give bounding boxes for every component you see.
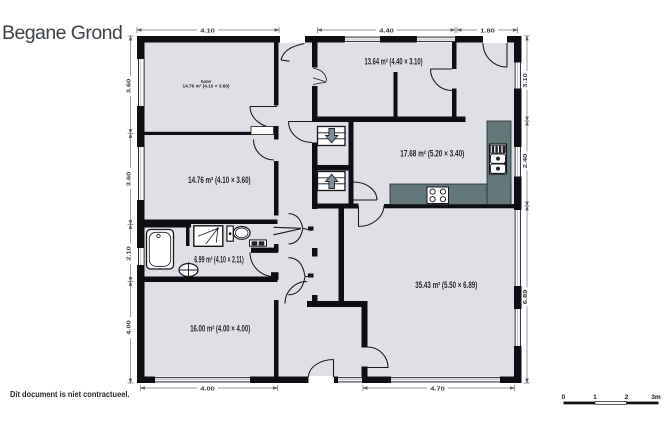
svg-text:Begane Grond: Begane Grond bbox=[2, 22, 122, 44]
svg-text:3.60: 3.60 bbox=[127, 79, 133, 94]
svg-text:6.99 m² (4.10 × 2.11): 6.99 m² (4.10 × 2.11) bbox=[194, 255, 244, 265]
svg-text:35.43 m² (5.50 × 6.89): 35.43 m² (5.50 × 6.89) bbox=[415, 280, 477, 290]
svg-text:4.70: 4.70 bbox=[430, 386, 445, 392]
svg-text:4.00: 4.00 bbox=[127, 320, 133, 335]
svg-text:1.80: 1.80 bbox=[480, 28, 495, 34]
svg-text:4.00: 4.00 bbox=[200, 386, 215, 392]
svg-text:3m: 3m bbox=[651, 394, 661, 401]
svg-text:Dit document is niet contractu: Dit document is niet contractueel. bbox=[10, 390, 130, 399]
svg-text:3.60: 3.60 bbox=[127, 172, 133, 187]
svg-text:14.76 m² (4.10 × 3.60): 14.76 m² (4.10 × 3.60) bbox=[188, 175, 251, 185]
svg-text:2.40: 2.40 bbox=[523, 154, 529, 169]
svg-text:2.10: 2.10 bbox=[127, 246, 133, 261]
svg-text:14.76 m² (4.10 × 3.60): 14.76 m² (4.10 × 3.60) bbox=[183, 84, 231, 89]
svg-text:17.68 m² (5.20 × 3.40): 17.68 m² (5.20 × 3.40) bbox=[400, 148, 464, 158]
svg-text:2: 2 bbox=[625, 394, 629, 401]
svg-text:4.40: 4.40 bbox=[379, 28, 394, 34]
svg-text:0: 0 bbox=[562, 394, 566, 401]
svg-text:6.89: 6.89 bbox=[523, 289, 529, 304]
svg-text:3.10: 3.10 bbox=[523, 73, 529, 88]
svg-text:1: 1 bbox=[593, 394, 597, 401]
svg-text:16.00 m² (4.00 × 4.00): 16.00 m² (4.00 × 4.00) bbox=[190, 323, 250, 333]
svg-text:4.10: 4.10 bbox=[200, 28, 215, 34]
svg-text:13.64 m² (4.40 × 3.10): 13.64 m² (4.40 × 3.10) bbox=[365, 57, 423, 67]
